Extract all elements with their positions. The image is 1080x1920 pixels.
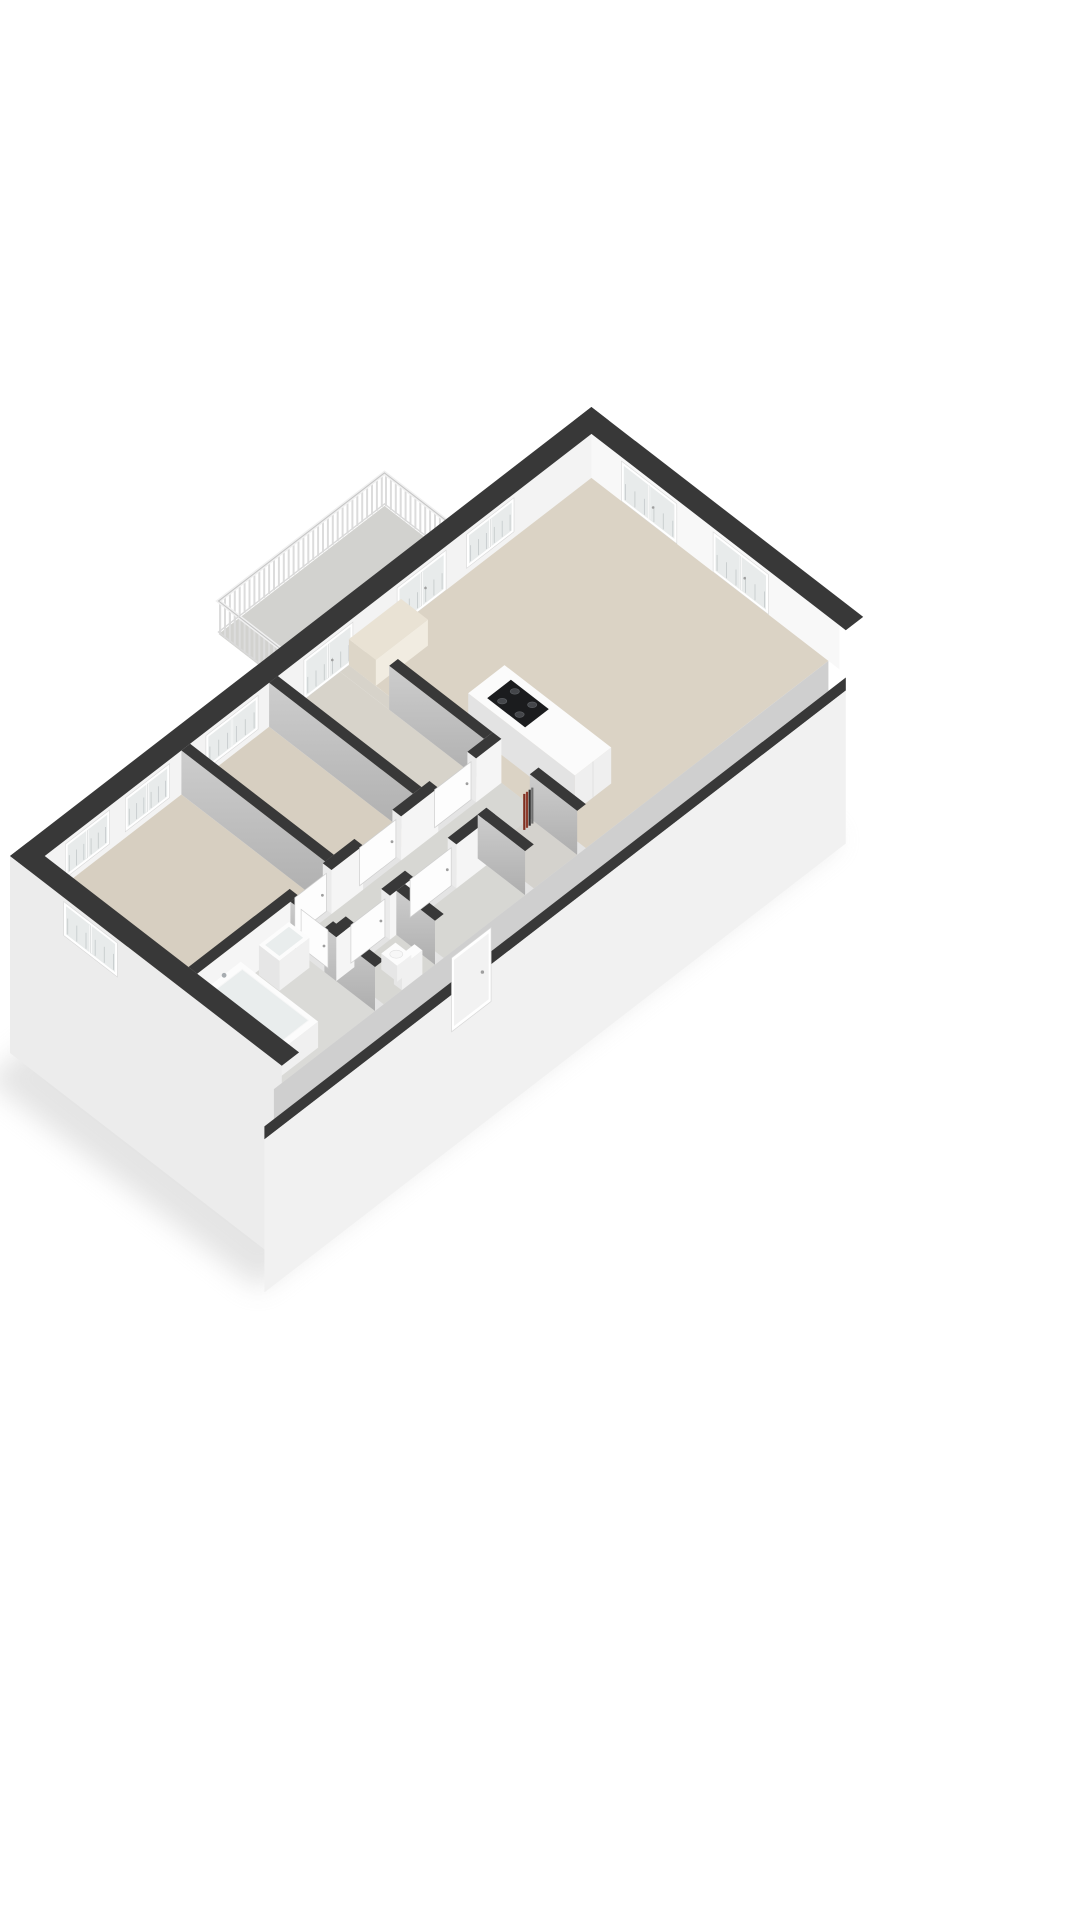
french-window-living-b-handle-icon (743, 577, 746, 580)
burner-icon (510, 689, 519, 695)
burner-icon (498, 698, 507, 704)
door-bedroom-2-handle-icon (391, 840, 394, 843)
entrance-door-handle-icon (481, 970, 484, 973)
toilet-seat (390, 950, 403, 958)
floorplan-3d-svg (0, 0, 1080, 1920)
door-study-handle-icon (466, 782, 469, 785)
bathtub-faucet-icon (222, 973, 227, 978)
balcony-door-living-handle-icon (424, 587, 427, 590)
balcony-door-study-handle-icon (331, 659, 334, 662)
french-window-living-a-handle-icon (652, 506, 655, 509)
door-bedroom-1-handle-icon (321, 894, 324, 897)
floorplan-canvas (0, 0, 1080, 1920)
burner-icon (515, 712, 524, 718)
door-entry-hall-handle-icon (446, 868, 449, 871)
door-bathroom-handle-icon (323, 945, 326, 948)
door-wc-handle-icon (380, 920, 383, 923)
page-background (0, 0, 1080, 1920)
burner-icon (528, 702, 537, 708)
